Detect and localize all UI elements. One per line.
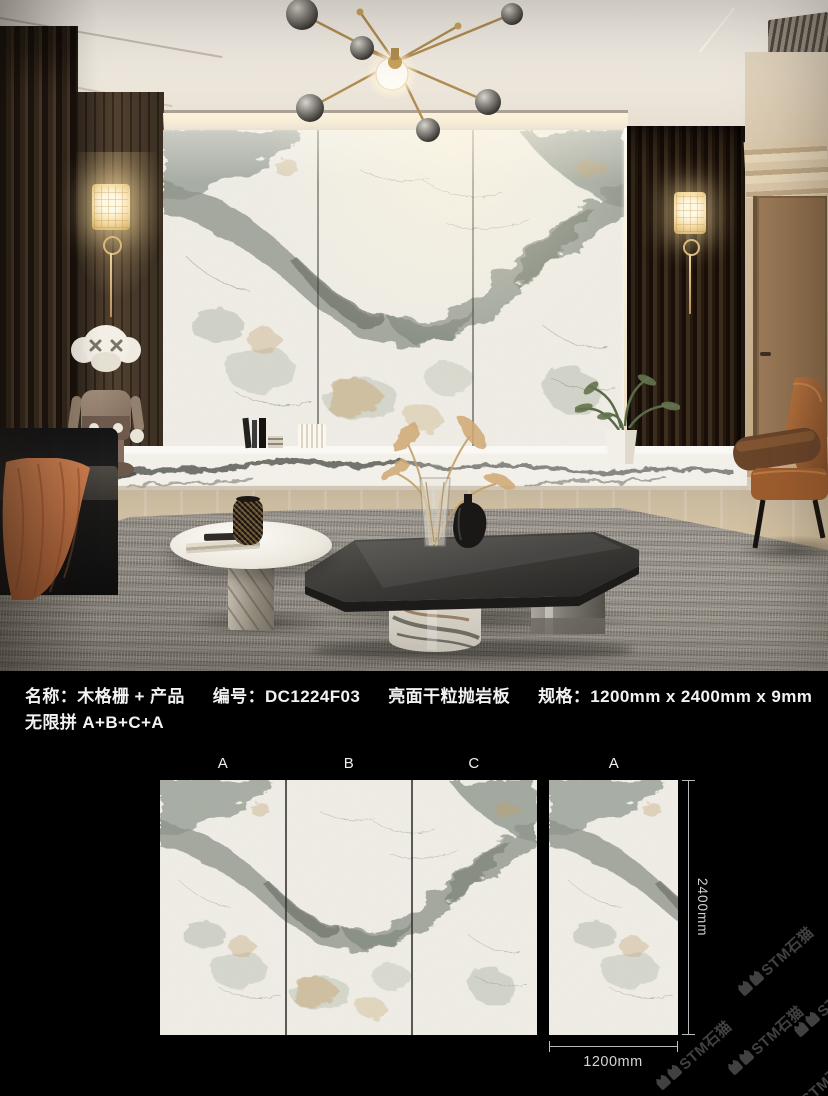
cat-logo-icon: [667, 1065, 683, 1080]
cat-logo-icon: [656, 1075, 672, 1090]
product-name: 名称：木格栅 + 产品: [25, 682, 185, 707]
sputnik-chandelier: [250, 0, 560, 162]
sconce-rod-right: [689, 254, 691, 314]
slab-seam-bc: [411, 780, 413, 1035]
cat-logo-icon: [728, 1060, 744, 1075]
slab-label-a: A: [218, 755, 229, 772]
product-poster: 名称：木格栅 + 产品 编号：DC1224F03 亮面干粒抛岩板 规格：1200…: [0, 0, 828, 1096]
leather-armchair: [733, 370, 828, 570]
height-dimension-label: 2400mm: [695, 878, 710, 937]
product-finish: 亮面干粒抛岩板: [388, 682, 510, 707]
chair-leg: [755, 500, 763, 548]
height-dimension-line: [688, 780, 689, 1035]
slab-group-abc: [160, 780, 537, 1035]
potted-plant: [575, 366, 680, 468]
table-decor: [368, 396, 518, 551]
slab-seam-ab: [285, 780, 287, 1035]
door-handle: [760, 352, 771, 356]
slab-single-texture: [549, 780, 678, 1035]
sconce-ring-right: [683, 239, 700, 256]
sconce-texture: [94, 186, 128, 228]
living-room-photo: [0, 0, 828, 671]
sconce-ring-left: [103, 236, 122, 255]
cat-logo-icon: [794, 1022, 810, 1037]
sconce-rod-left: [110, 253, 112, 317]
slab-label-a-single: A: [609, 755, 620, 772]
wall-sconce-right: [674, 192, 706, 234]
throw-blanket: [0, 458, 95, 603]
slab-label-b: B: [344, 755, 355, 772]
sconce-texture: [676, 194, 704, 232]
decor-ribbed-vase: [298, 424, 326, 448]
info-bar: 名称：木格栅 + 产品 编号：DC1224F03 亮面干粒抛岩板 规格：1200…: [0, 671, 828, 747]
chair-leg: [815, 500, 823, 538]
book: [259, 418, 266, 448]
slab-label-c: C: [468, 755, 479, 772]
vase-rim: [236, 496, 260, 502]
watermark-text: STM石猫: [756, 922, 818, 981]
cat-logo-icon: [805, 1012, 821, 1027]
cat-logo-icon: [739, 1050, 755, 1065]
book: [252, 420, 257, 448]
spec-line: 名称：木格栅 + 产品 编号：DC1224F03 亮面干粒抛岩板 规格：1200…: [25, 682, 828, 707]
slab-single-a: [549, 780, 678, 1035]
width-dimension-line: [549, 1046, 678, 1047]
product-code: 编号：DC1224F03: [213, 682, 360, 707]
cat-logo-icon: [738, 981, 754, 996]
glass-vase: [420, 478, 450, 546]
cat-logo-icon: [749, 971, 765, 986]
book-stack: [268, 436, 283, 448]
decor-books: [244, 414, 284, 448]
woven-vase: [233, 499, 263, 545]
combo-line: 无限拼 A+B+C+A: [25, 708, 164, 733]
side-table-base: [228, 568, 274, 630]
base-veins: [228, 568, 274, 630]
slab-group-texture: [160, 780, 537, 1035]
watermark: STM石猫: [774, 1051, 828, 1096]
height-dimension: 2400mm: [695, 780, 710, 1035]
hallway-moldings: [744, 138, 828, 198]
product-spec: 规格：1200mm x 2400mm x 9mm: [538, 682, 812, 707]
book: [242, 418, 251, 448]
watermark: STM石猫: [724, 1001, 808, 1080]
watermark-text: STM石猫: [796, 1051, 828, 1096]
watermark: STM石猫: [734, 922, 818, 1001]
width-dimension-label: 1200mm: [583, 1054, 642, 1070]
wall-sconce-left: [92, 184, 130, 230]
